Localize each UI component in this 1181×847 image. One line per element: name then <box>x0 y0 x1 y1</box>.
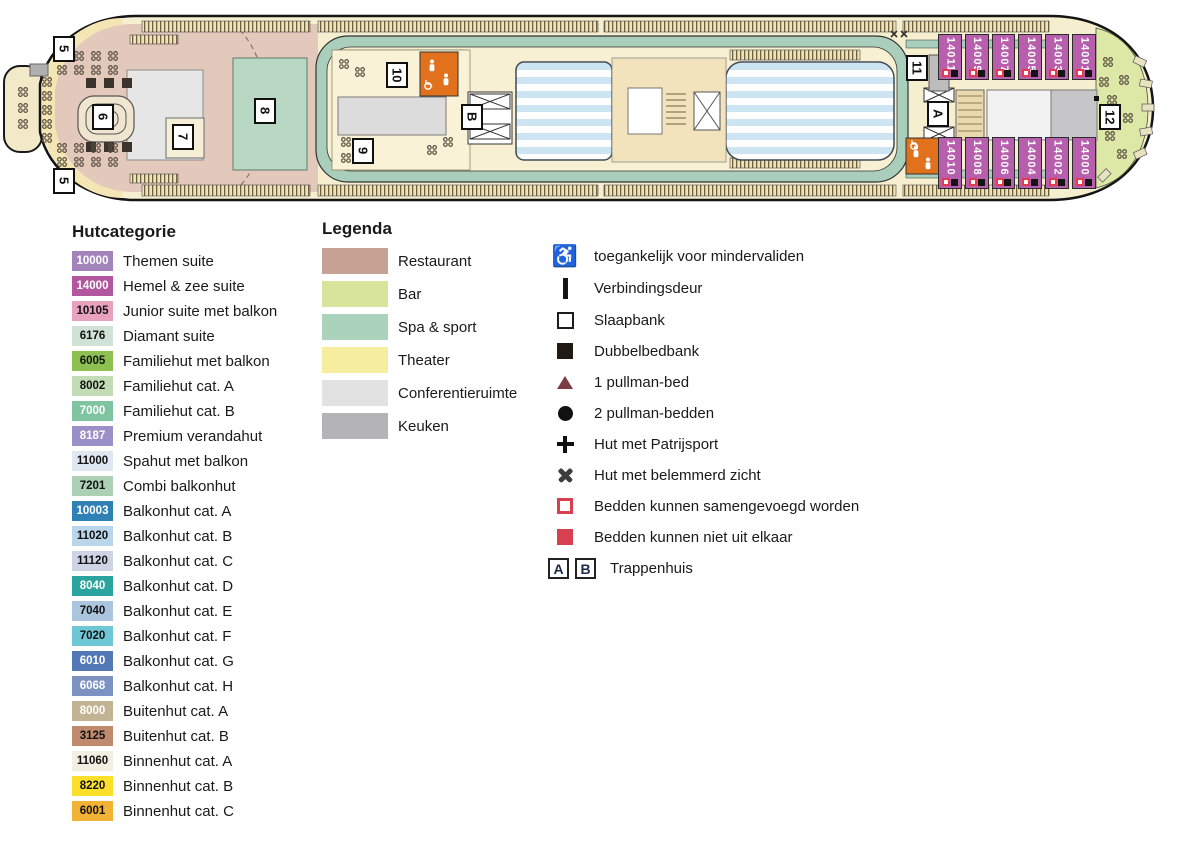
area-legend-row: Restaurant <box>322 248 532 274</box>
double-bed-icon <box>978 179 985 186</box>
category-label: Balkonhut cat. H <box>123 678 233 695</box>
category-label: Buitenhut cat. A <box>123 703 228 720</box>
category-label: Balkonhut cat. E <box>123 603 232 620</box>
category-label: Premium verandahut <box>123 428 262 445</box>
beds-joinable-icon <box>1022 69 1030 77</box>
cabin-category-title: Hutcategorie <box>72 222 322 242</box>
symbol-icon <box>557 529 573 545</box>
wc-stern <box>906 138 940 174</box>
symbol-row: Bedden kunnen samengevoegd worden <box>548 496 968 516</box>
cabin-category-row: 11000 Spahut met balkon <box>72 451 322 471</box>
symbol-icon <box>557 436 574 453</box>
area-legend-row: Bar <box>322 281 532 307</box>
category-label: Balkonhut cat. B <box>123 528 232 545</box>
cabin: 14003 <box>1045 34 1069 80</box>
cabin-category-row: 10105 Junior suite met balkon <box>72 301 322 321</box>
stairwell-label: Trappenhuis <box>610 560 693 577</box>
pool-right <box>726 62 894 160</box>
category-color-swatch: 11020 <box>72 526 113 546</box>
category-label: Binnenhut cat. B <box>123 778 233 795</box>
category-color-swatch: 6176 <box>72 326 113 346</box>
beds-joinable-icon <box>1022 178 1030 186</box>
cabin-category-row: 6005 Familiehut met balkon <box>72 351 322 371</box>
symbol-label: Hut met Patrijsport <box>594 436 718 453</box>
beds-joinable-icon <box>969 178 977 186</box>
cabin-number: 14001 <box>1079 37 1090 73</box>
cabin-category-row: 6010 Balkonhut cat. G <box>72 651 322 671</box>
area-label: Restaurant <box>398 253 471 270</box>
area-legend-list: Restaurant Bar Spa & sport Theater Confe… <box>322 248 532 439</box>
symbol-icon <box>557 312 574 329</box>
cabin-category-row: 7040 Balkonhut cat. E <box>72 601 322 621</box>
symbol-label: Verbindingsdeur <box>594 280 702 297</box>
cabin: 14000 <box>1072 137 1096 189</box>
beds-joinable-icon <box>969 69 977 77</box>
area-label: Keuken <box>398 418 449 435</box>
beds-joinable-icon <box>942 69 950 77</box>
area-color-swatch <box>322 347 388 373</box>
category-color-swatch: 10105 <box>72 301 113 321</box>
cabin-category-row: 8187 Premium verandahut <box>72 426 322 446</box>
category-color-swatch: 7020 <box>72 626 113 646</box>
beds-joinable-icon <box>996 69 1004 77</box>
cabin-number: 14004 <box>1025 140 1036 176</box>
symbol-label: Hut met belemmerd zicht <box>594 467 761 484</box>
cabin-category-row: 8220 Binnenhut cat. B <box>72 776 322 796</box>
category-color-swatch: 6005 <box>72 351 113 371</box>
small-marker <box>1094 96 1099 101</box>
marker-7: 7 <box>172 124 194 150</box>
cabin: 14005 <box>1018 34 1042 80</box>
symbol-row: Dubbelbedbank <box>548 341 968 361</box>
category-color-swatch: 3125 <box>72 726 113 746</box>
beds-joinable-icon <box>942 178 950 186</box>
category-color-swatch: 7000 <box>72 401 113 421</box>
marker-stairwell-a: A <box>927 101 949 127</box>
cabin: 14004 <box>1018 137 1042 189</box>
category-color-swatch: 11000 <box>72 451 113 471</box>
beds-joinable-icon <box>1049 178 1057 186</box>
category-color-swatch: 10000 <box>72 251 113 271</box>
marker-12: 12 <box>1099 104 1121 130</box>
area-legend: Legenda Restaurant Bar Spa & sport Theat… <box>322 219 532 446</box>
category-label: Combi balkonhut <box>123 478 236 495</box>
area-color-swatch <box>322 281 388 307</box>
category-color-swatch: 6010 <box>72 651 113 671</box>
cabin-row-top: 14011 14009 14007 14005 <box>938 34 1096 80</box>
cabin: 14007 <box>992 34 1016 80</box>
bow-pod <box>4 66 42 152</box>
double-bed-icon <box>1085 70 1092 77</box>
area-label: Bar <box>398 286 421 303</box>
marker-9: 9 <box>352 138 374 164</box>
conference-midship <box>338 97 446 135</box>
category-color-swatch: 6068 <box>72 676 113 696</box>
cabin-category-row: 6001 Binnenhut cat. C <box>72 801 322 821</box>
category-label: Themen suite <box>123 253 214 270</box>
double-bed-icon <box>1031 179 1038 186</box>
pool-left <box>516 62 612 160</box>
cabin-category-row: 11060 Binnenhut cat. A <box>72 751 322 771</box>
cabin: 14001 <box>1072 34 1096 80</box>
cabin: 14008 <box>965 137 989 189</box>
category-label: Binnenhut cat. C <box>123 803 234 820</box>
cabin-category-list: 10000 Themen suite 14000 Hemel & zee sui… <box>72 251 322 821</box>
bow-gray-block <box>30 64 48 76</box>
symbol-row: Hut met Patrijsport <box>548 434 968 454</box>
category-color-swatch: 8220 <box>72 776 113 796</box>
cabin-category-row: 10000 Themen suite <box>72 251 322 271</box>
double-bed-icon <box>1004 179 1011 186</box>
cabin-number: 14010 <box>944 140 955 176</box>
cabin-category-row: 8040 Balkonhut cat. D <box>72 576 322 596</box>
symbol-icon <box>557 498 573 514</box>
cabin: 14009 <box>965 34 989 80</box>
double-bed-icon <box>978 70 985 77</box>
cabin-number: 14000 <box>1079 140 1090 176</box>
area-legend-row: Spa & sport <box>322 314 532 340</box>
area-color-swatch <box>322 248 388 274</box>
cabin-category-row: 11120 Balkonhut cat. C <box>72 551 322 571</box>
stern-stairs <box>956 90 984 140</box>
symbol-icon <box>557 343 573 359</box>
double-bed-icon <box>1058 70 1065 77</box>
symbol-icon <box>557 467 574 484</box>
symbol-row: Bedden kunnen niet uit elkaar <box>548 527 968 547</box>
category-label: Familiehut cat. B <box>123 403 235 420</box>
category-color-swatch: 10003 <box>72 501 113 521</box>
area-color-swatch <box>322 380 388 406</box>
stairwell-legend-row: A B Trappenhuis <box>548 558 968 579</box>
double-bed-icon <box>1085 179 1092 186</box>
cabin-category-row: 6176 Diamant suite <box>72 326 322 346</box>
wc-midship <box>420 52 458 96</box>
symbol-label: Bedden kunnen samengevoegd worden <box>594 498 859 515</box>
symbol-label: toegankelijk voor mindervaliden <box>594 248 804 265</box>
marker-5-bottom: 5 <box>53 168 75 194</box>
symbol-label: 1 pullman-bed <box>594 374 689 391</box>
cabin-number: 14006 <box>998 140 1009 176</box>
symbol-row: 1 pullman-bed <box>548 372 968 392</box>
cabin-category-row: 11020 Balkonhut cat. B <box>72 526 322 546</box>
cabin-category-row: 7201 Combi balkonhut <box>72 476 322 496</box>
area-color-swatch <box>322 314 388 340</box>
area-label: Theater <box>398 352 450 369</box>
cabin-category-legend: Hutcategorie 10000 Themen suite 14000 He… <box>72 222 322 826</box>
symbol-label: Slaapbank <box>594 312 665 329</box>
category-label: Diamant suite <box>123 328 215 345</box>
stern-conference <box>987 90 1051 140</box>
category-color-swatch: 8002 <box>72 376 113 396</box>
symbol-row: Hut met belemmerd zicht <box>548 465 968 485</box>
stairwell-a-icon: A <box>548 558 569 579</box>
beds-joinable-icon <box>1076 178 1084 186</box>
category-label: Balkonhut cat. A <box>123 503 231 520</box>
cabin-number: 14007 <box>998 37 1009 73</box>
category-label: Familiehut cat. A <box>123 378 234 395</box>
category-color-swatch: 14000 <box>72 276 113 296</box>
double-bed-icon <box>951 70 958 77</box>
symbol-label: 2 pullman-bedden <box>594 405 714 422</box>
symbol-icon <box>557 376 573 389</box>
symbol-icon: ♿ <box>552 246 578 267</box>
category-label: Binnenhut cat. A <box>123 753 232 770</box>
cabin: 14010 <box>938 137 962 189</box>
category-label: Hemel & zee suite <box>123 278 245 295</box>
category-label: Spahut met balkon <box>123 453 248 470</box>
category-label: Balkonhut cat. F <box>123 628 231 645</box>
cabin-number: 14003 <box>1052 37 1063 73</box>
symbol-label: Bedden kunnen niet uit elkaar <box>594 529 792 546</box>
area-label: Conferentieruimte <box>398 385 517 402</box>
stairwell-b-icon: B <box>575 558 596 579</box>
beds-joinable-icon <box>996 178 1004 186</box>
cabin-number: 14008 <box>971 140 982 176</box>
symbol-row: ♿ toegankelijk voor mindervaliden <box>548 246 968 267</box>
category-label: Familiehut met balkon <box>123 353 270 370</box>
cabin-category-row: 10003 Balkonhut cat. A <box>72 501 322 521</box>
cabin: 14002 <box>1045 137 1069 189</box>
marker-8: 8 <box>254 98 276 124</box>
marker-5-top: 5 <box>53 36 75 62</box>
island-stage <box>628 88 662 134</box>
symbol-icon <box>563 278 568 299</box>
category-color-swatch: 8187 <box>72 426 113 446</box>
cabin-category-row: 14000 Hemel & zee suite <box>72 276 322 296</box>
cabin-category-row: 7000 Familiehut cat. B <box>72 401 322 421</box>
marker-6: 6 <box>92 104 114 130</box>
area-legend-title: Legenda <box>322 219 532 239</box>
cabin-category-row: 7020 Balkonhut cat. F <box>72 626 322 646</box>
symbol-row: Verbindingsdeur <box>548 278 968 299</box>
double-bed-icon <box>1058 179 1065 186</box>
category-label: Junior suite met balkon <box>123 303 277 320</box>
category-color-swatch: 7201 <box>72 476 113 496</box>
beds-joinable-icon <box>1049 69 1057 77</box>
area-color-swatch <box>322 413 388 439</box>
cabin-category-row: 3125 Buitenhut cat. B <box>72 726 322 746</box>
category-label: Balkonhut cat. G <box>123 653 234 670</box>
cabin-number: 14011 <box>944 37 955 72</box>
cabin: 14011 <box>938 34 962 80</box>
symbol-label: Dubbelbedbank <box>594 343 699 360</box>
symbol-row: Slaapbank <box>548 310 968 330</box>
category-color-swatch: 8040 <box>72 576 113 596</box>
cabin-row-bottom: 14010 14008 14006 14004 <box>938 137 1096 189</box>
beds-joinable-icon <box>1076 69 1084 77</box>
cabin-number: 14002 <box>1052 140 1063 176</box>
double-bed-icon <box>1031 70 1038 77</box>
area-label: Spa & sport <box>398 319 476 336</box>
cabin-category-row: 8000 Buitenhut cat. A <box>72 701 322 721</box>
category-label: Buitenhut cat. B <box>123 728 229 745</box>
marker-11: 11 <box>906 55 928 81</box>
category-color-swatch: 6001 <box>72 801 113 821</box>
area-legend-row: Conferentieruimte <box>322 380 532 406</box>
category-color-swatch: 11060 <box>72 751 113 771</box>
cabin-category-row: 8002 Familiehut cat. A <box>72 376 322 396</box>
area-legend-row: Keuken <box>322 413 532 439</box>
symbol-list: ♿ toegankelijk voor mindervaliden Verbin… <box>548 246 968 547</box>
category-color-swatch: 7040 <box>72 601 113 621</box>
category-color-swatch: 8000 <box>72 701 113 721</box>
marker-stairwell-b: B <box>461 104 483 130</box>
category-color-swatch: 11120 <box>72 551 113 571</box>
cabin-number: 14009 <box>971 37 982 73</box>
marker-10: 10 <box>386 62 408 88</box>
symbol-legend: ♿ toegankelijk voor mindervaliden Verbin… <box>548 246 968 579</box>
cabin: 14006 <box>992 137 1016 189</box>
category-label: Balkonhut cat. C <box>123 553 233 570</box>
cabin-number: 14005 <box>1025 37 1036 73</box>
deck-plan: 14011 14009 14007 14005 <box>0 0 1181 215</box>
cabin-category-row: 6068 Balkonhut cat. H <box>72 676 322 696</box>
symbol-icon <box>558 406 573 421</box>
category-label: Balkonhut cat. D <box>123 578 233 595</box>
area-legend-row: Theater <box>322 347 532 373</box>
symbol-row: 2 pullman-bedden <box>548 403 968 423</box>
double-bed-icon <box>951 179 958 186</box>
kitchen <box>1051 90 1097 140</box>
double-bed-icon <box>1004 70 1011 77</box>
